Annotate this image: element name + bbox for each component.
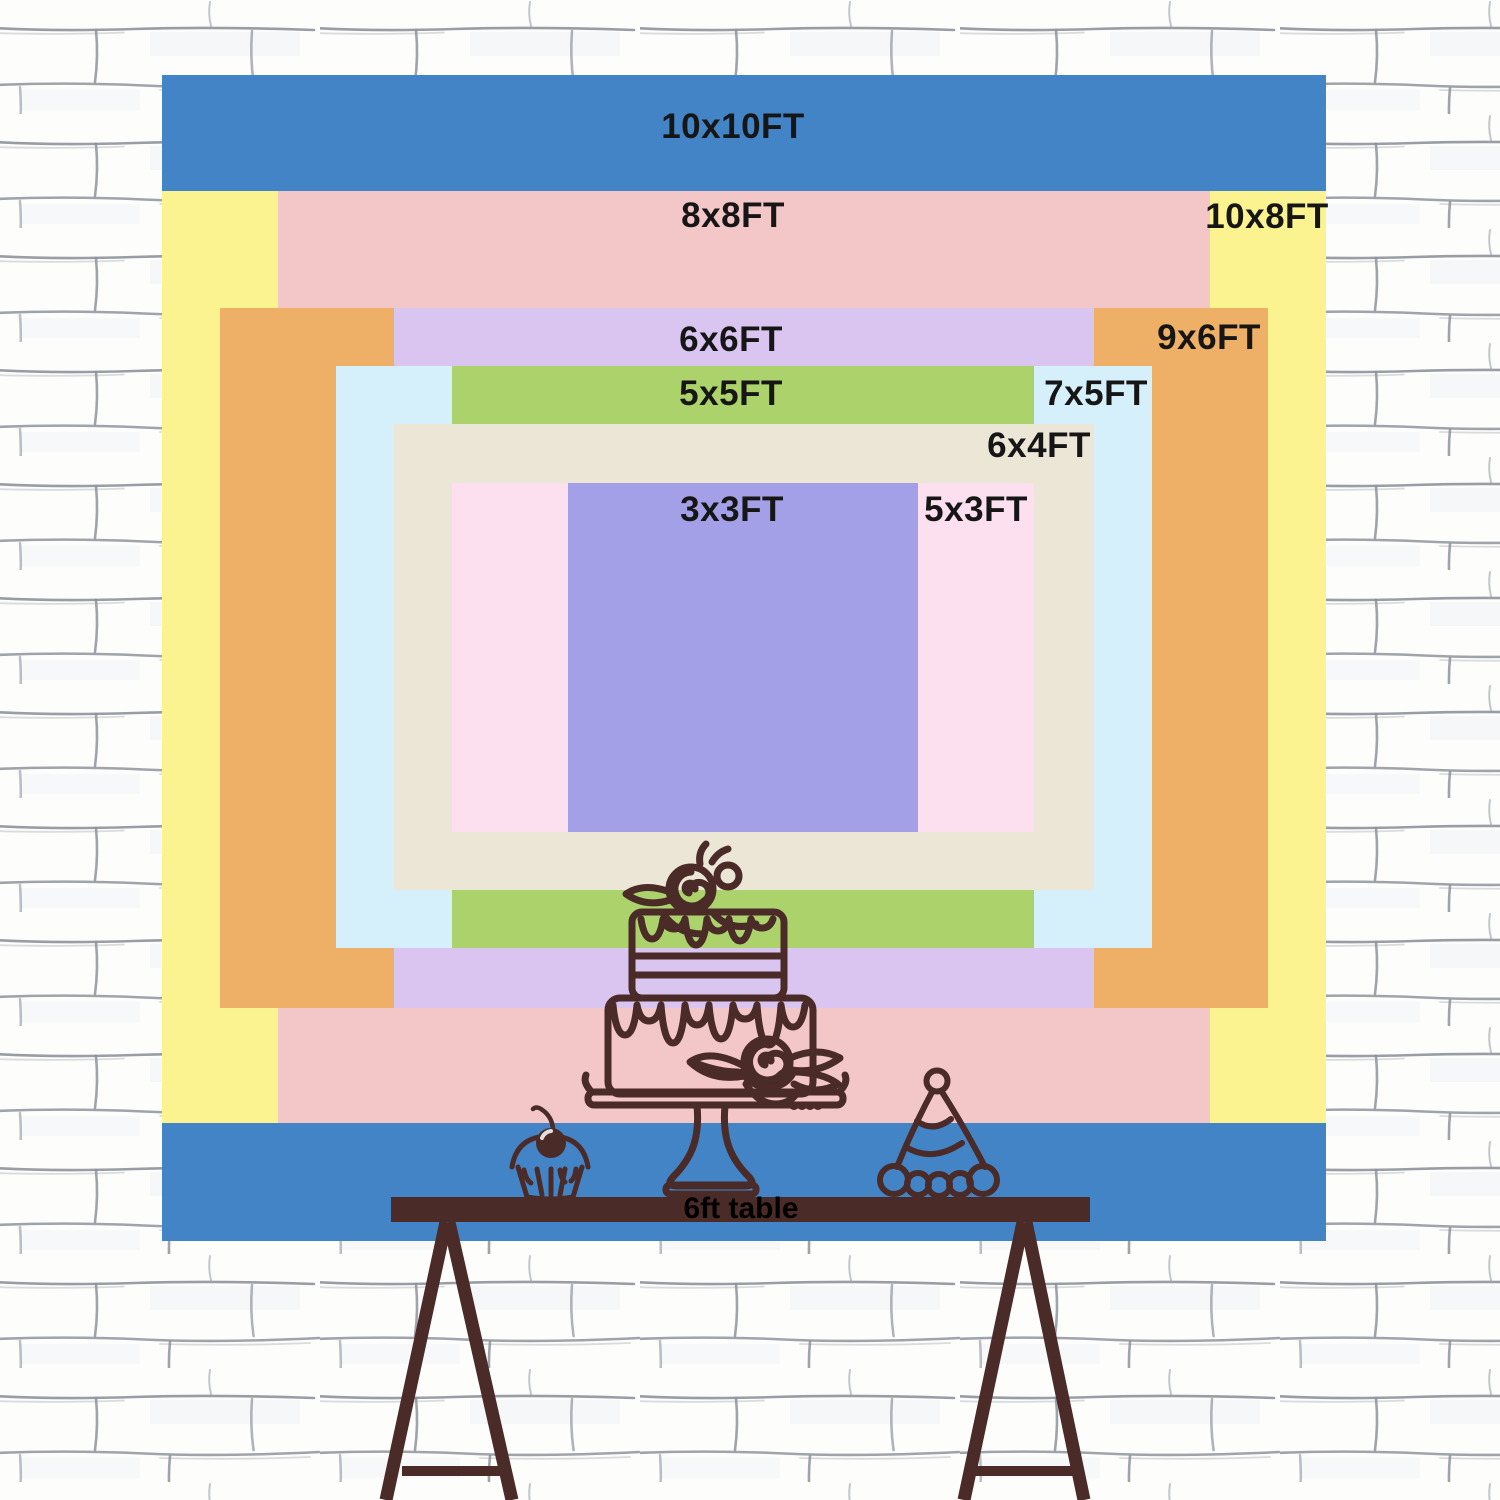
table-size-label: 6ft table xyxy=(683,1192,798,1226)
size-chart-canvas: 10x10FT10x8FT8x8FT9x6FT6x6FT7x5FT5x5FT6x… xyxy=(0,0,1500,1500)
table-legs xyxy=(386,1222,1084,1500)
foreground-illustrations xyxy=(0,0,1500,1500)
birthday-cake-illustration xyxy=(585,844,846,1194)
party-hat-illustration xyxy=(880,1071,997,1197)
cupcake-illustration xyxy=(512,1108,588,1200)
